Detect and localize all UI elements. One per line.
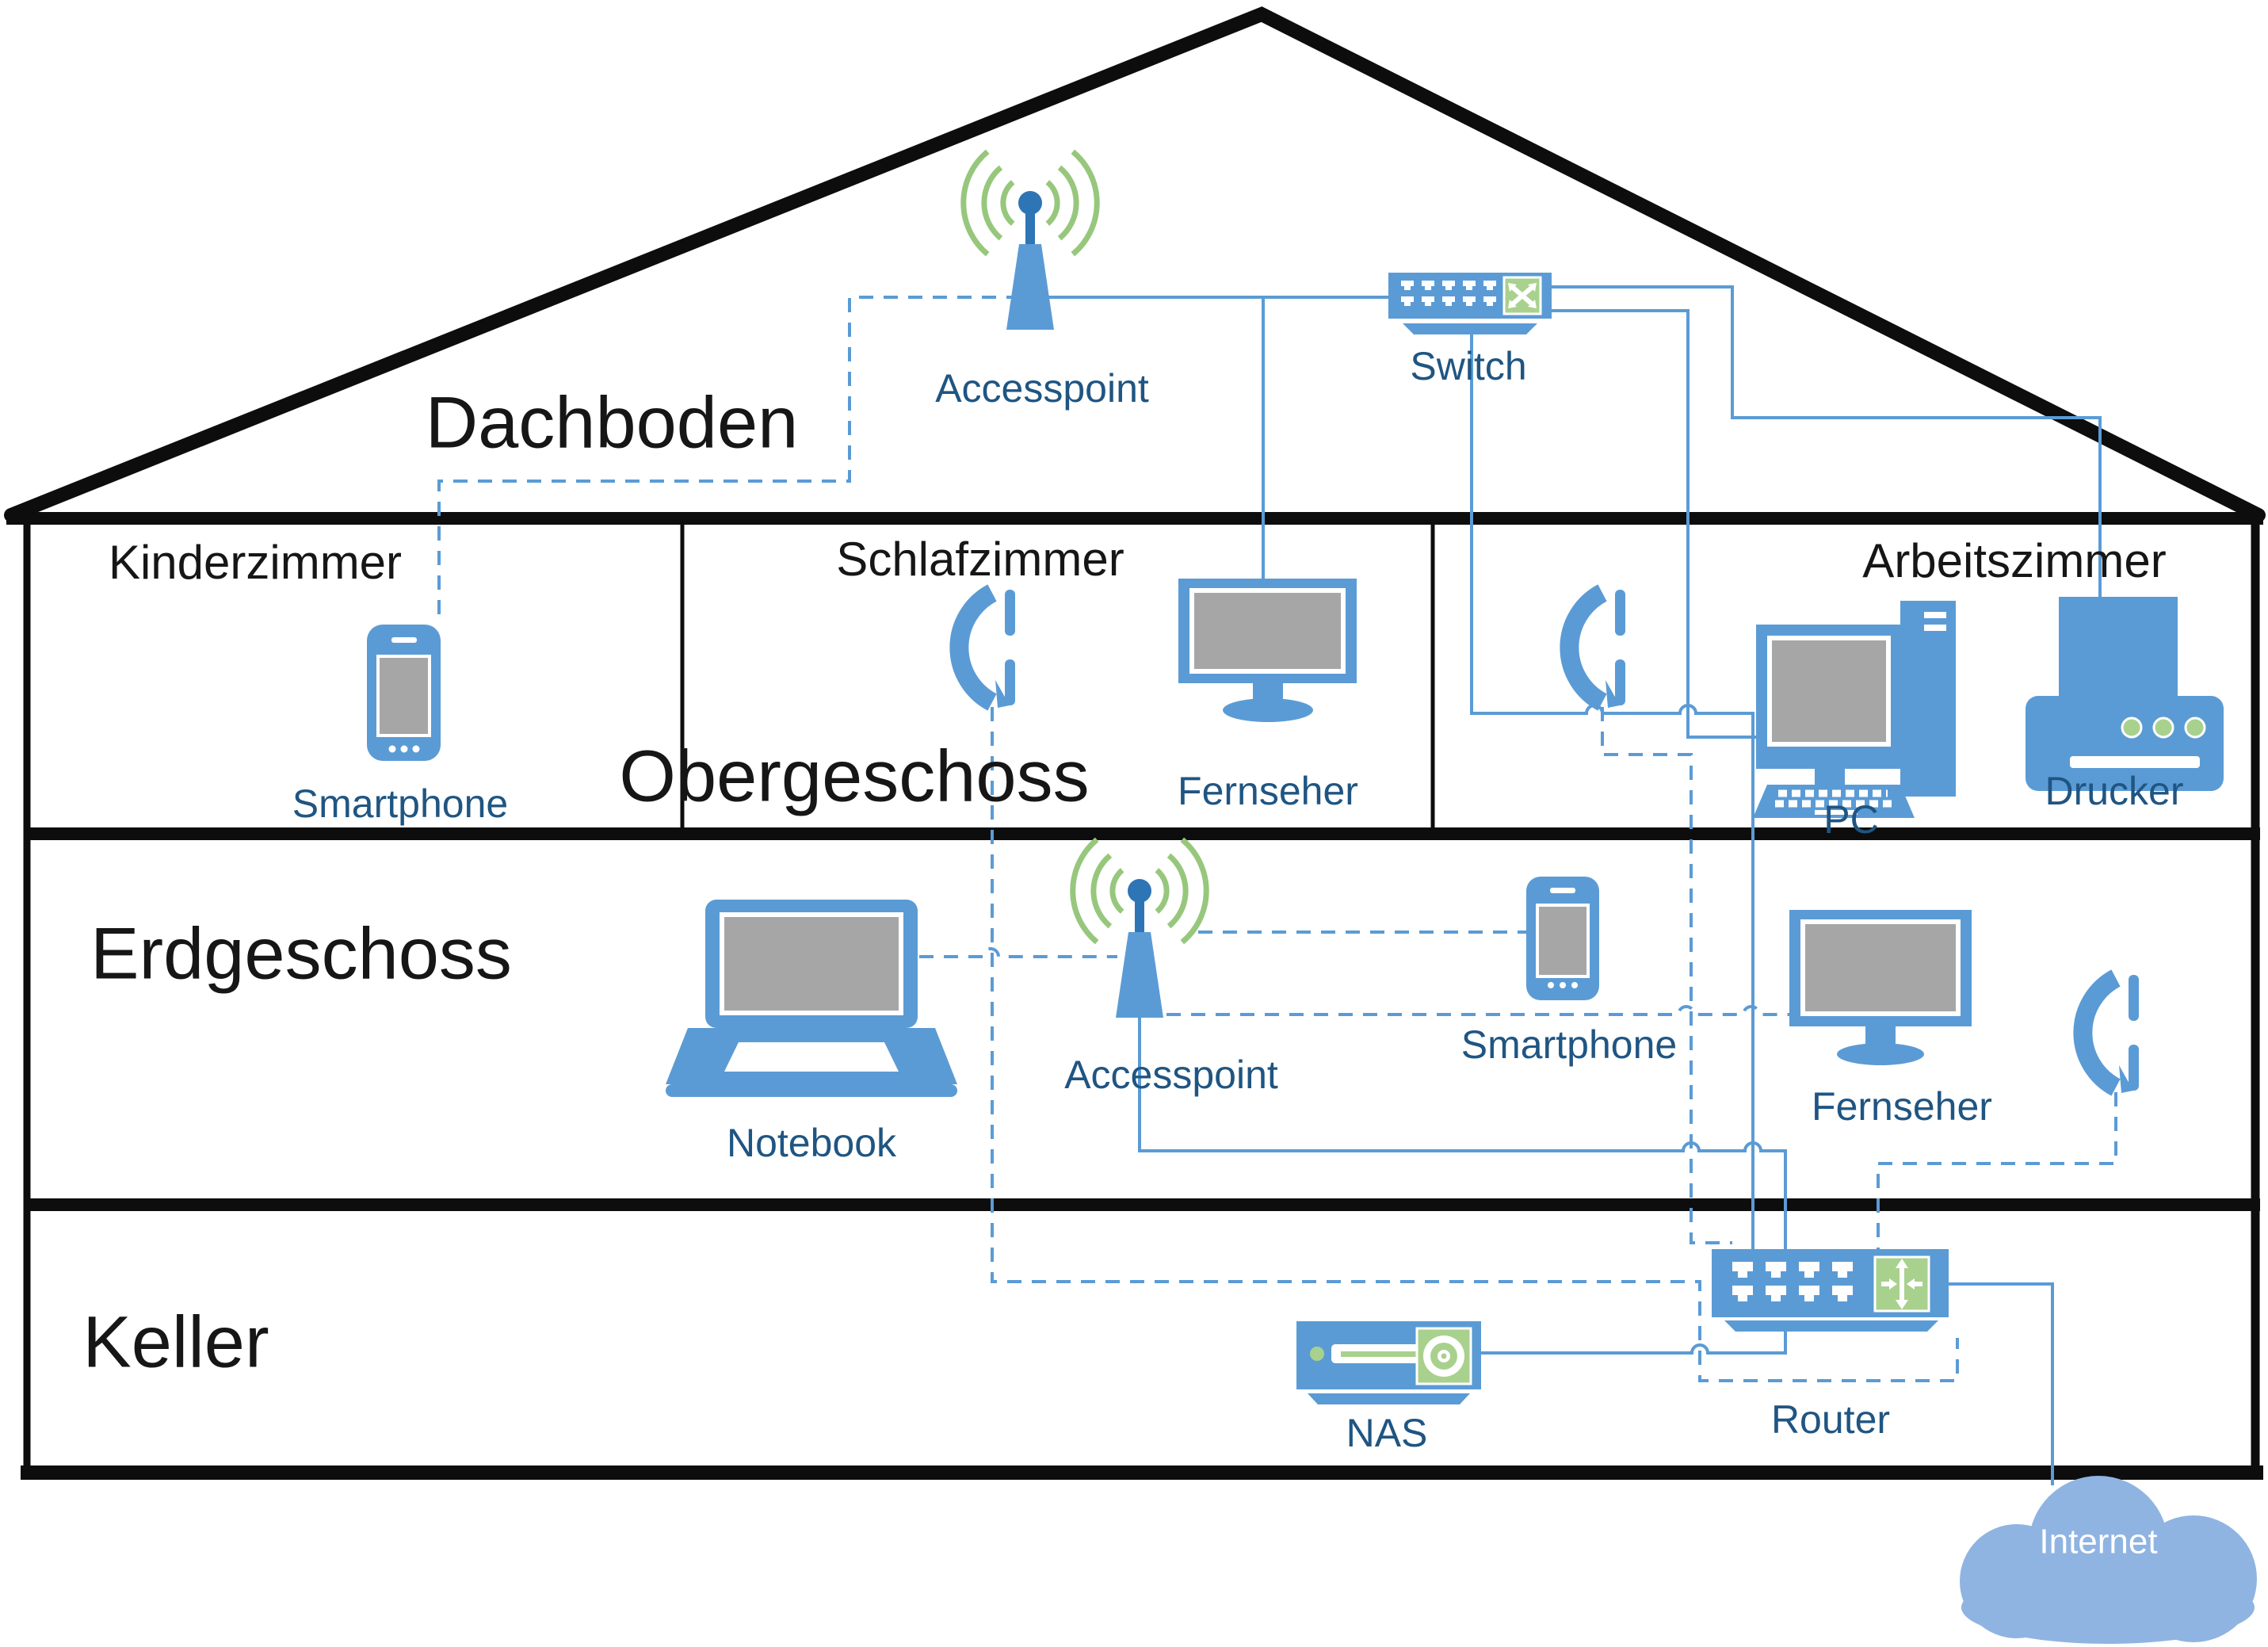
device-label-notebook: Notebook — [727, 1121, 897, 1165]
device-label-fernseher-sz: Fernseher — [1178, 769, 1358, 813]
cable-nas-router — [1481, 1328, 1785, 1353]
telefon-erdgeschoss-icon — [2083, 975, 2139, 1093]
roof-outline — [11, 14, 2258, 515]
accesspoint-erdgeschoss-icon — [1073, 839, 1206, 1018]
floor-label-erdgeschoss: Erdgeschoss — [90, 913, 512, 994]
device-label-accesspoint-dachboden: Accesspoint — [935, 366, 1149, 411]
room-label-schlafzimmer: Schlafzimmer — [836, 533, 1124, 586]
house-network-diagram: Dachboden Obergeschoss Erdgeschoss Kelle… — [0, 0, 2268, 1647]
telefon-schlafzimmer-icon — [959, 590, 1015, 708]
drucker-icon — [2026, 597, 2224, 791]
fernseher-erdgeschoss-icon — [1789, 910, 1972, 1065]
device-label-switch: Switch — [1410, 344, 1526, 388]
cable-switch-router — [1472, 334, 1753, 1251]
nas-icon — [1296, 1321, 1481, 1404]
device-label-accesspoint-eg: Accesspoint — [1064, 1053, 1278, 1097]
cable-router-internet — [1949, 1284, 2052, 1485]
device-label-pc: PC — [1823, 797, 1878, 842]
device-label-router: Router — [1771, 1397, 1890, 1442]
device-label-drucker: Drucker — [2045, 769, 2183, 813]
telefon-arbeitszimmer-icon — [1569, 590, 1625, 708]
floor-label-obergeschoss: Obergeschoss — [619, 736, 1089, 816]
fernseher-schlafzimmer-icon — [1178, 579, 1357, 722]
device-label-smartphone-eg: Smartphone — [1461, 1022, 1677, 1067]
accesspoint-dachboden-icon — [964, 151, 1097, 330]
internet-cloud-label: Internet — [2039, 1523, 2157, 1561]
floor-label-dachboden: Dachboden — [426, 382, 799, 463]
smartphone-erdgeschoss-icon — [1526, 877, 1599, 1000]
wifi-telefon-az-router — [1602, 707, 1732, 1243]
router-icon — [1712, 1249, 1949, 1332]
wifi-accesspoint-eg-fernseher — [1166, 1007, 1789, 1015]
pc-icon — [1753, 601, 1956, 818]
device-label-smartphone-kz: Smartphone — [292, 781, 508, 826]
device-label-nas: NAS — [1346, 1411, 1428, 1455]
device-label-fernseher-eg: Fernseher — [1812, 1084, 1992, 1129]
switch-icon — [1388, 273, 1552, 334]
diagram-svg: Dachboden Obergeschoss Erdgeschoss Kelle… — [0, 0, 2268, 1647]
room-label-arbeitszimmer: Arbeitszimmer — [1862, 534, 2166, 587]
wifi-notebook-accesspoint-eg — [919, 949, 1117, 957]
floor-label-keller: Keller — [82, 1301, 269, 1382]
notebook-icon — [666, 900, 957, 1097]
smartphone-kinderzimmer-icon — [367, 625, 441, 761]
room-label-kinderzimmer: Kinderzimmer — [109, 536, 402, 589]
